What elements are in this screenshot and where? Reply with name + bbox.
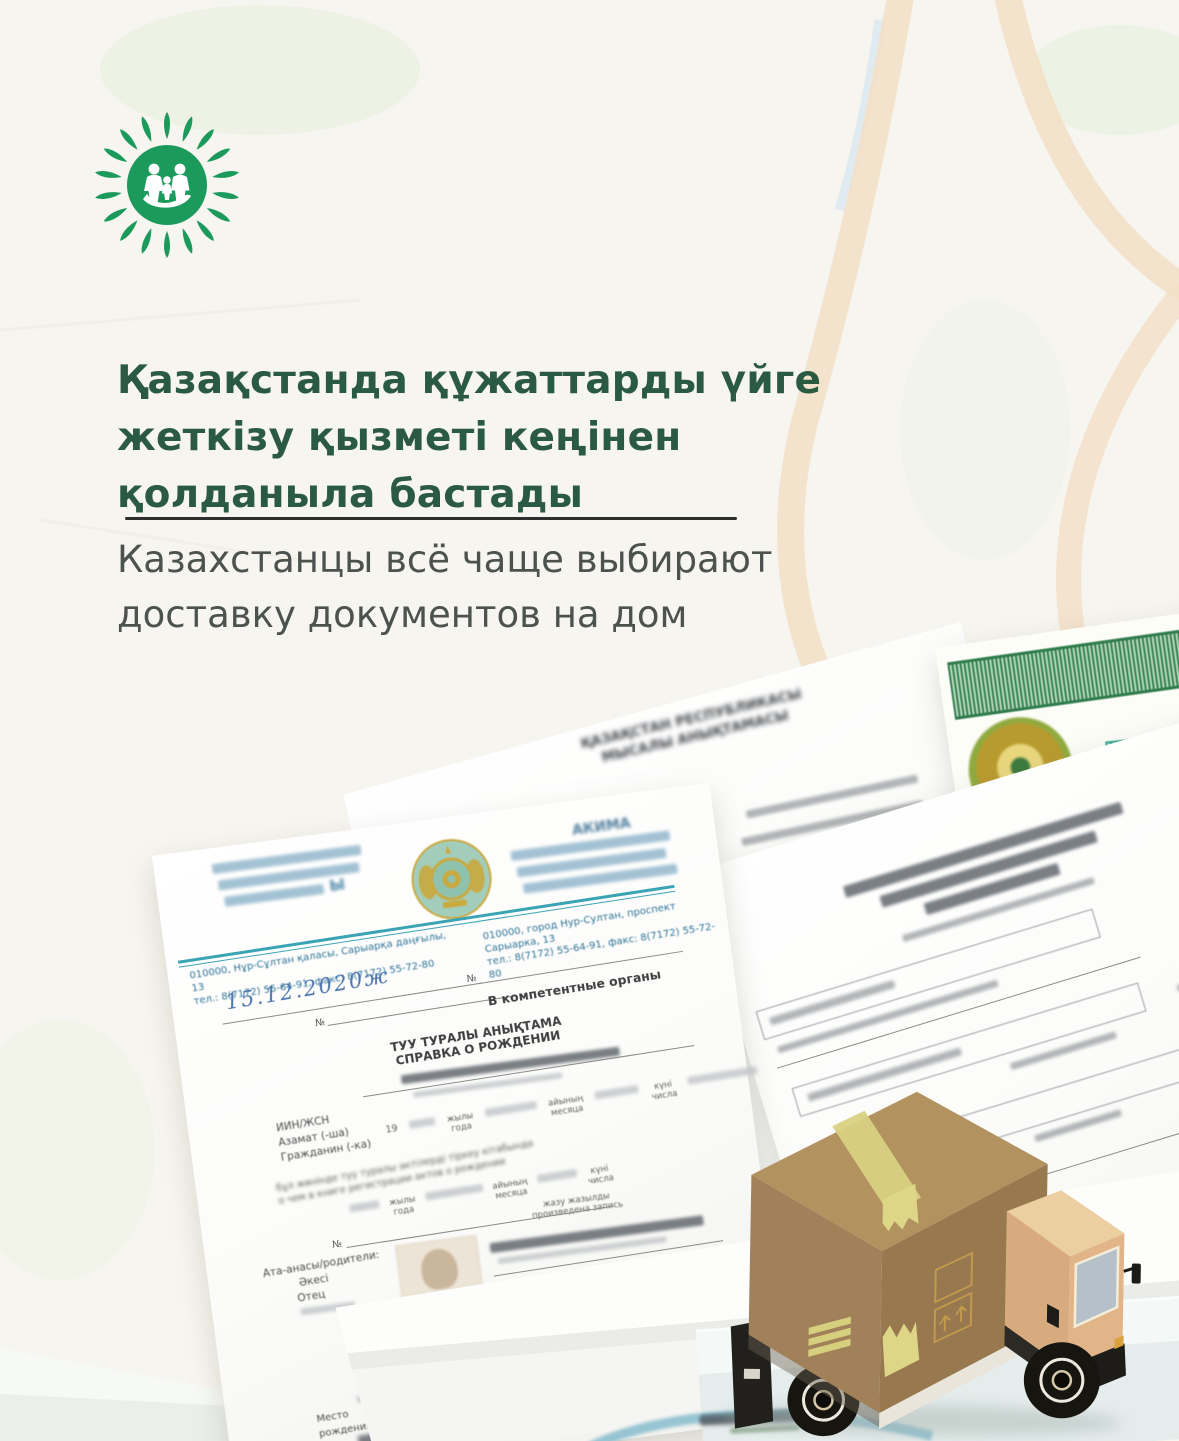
headline-line-2: жеткізу қызметі кеңінен bbox=[117, 409, 821, 466]
cardboard-box-icon bbox=[747, 1089, 1049, 1432]
delivery-truck-illustration bbox=[709, 1068, 1155, 1441]
headline-kk: Қазақстанда құжаттарды үйге жеткізу қызм… bbox=[117, 352, 821, 523]
subtitle-ru: Казахстанцы всё чаще выбирают доставку д… bbox=[117, 532, 772, 642]
parents-labels: Ата-анасы/родители: Әкесі Отец bbox=[262, 1248, 386, 1312]
headline-divider bbox=[125, 517, 737, 520]
headline-line-1: Қазақстанда құжаттарды үйге bbox=[117, 352, 821, 409]
headline-line-3: қолданыла бастады bbox=[117, 466, 821, 523]
number-sign: № bbox=[466, 973, 477, 985]
org-left-fragment: Ы bbox=[328, 875, 346, 895]
subtitle-line-2: доставку документов на дом bbox=[117, 587, 772, 642]
kazakhstan-emblem-icon bbox=[404, 832, 498, 926]
record-number-sign: № bbox=[332, 1239, 343, 1251]
subtitle-line-1: Казахстанцы всё чаще выбирают bbox=[117, 532, 772, 587]
mirror-icon bbox=[1132, 1263, 1141, 1283]
address-ru: 010000, город Нур-Султан, проспект Сарыа… bbox=[482, 894, 719, 982]
poster-canvas: Қазақстанда құжаттарды үйге жеткізу қызм… bbox=[0, 0, 1179, 1441]
iin-labels: ИИН/ЖСН Азамат (-ша) Гражданин (-ка) bbox=[275, 1107, 372, 1166]
government-for-citizens-logo bbox=[92, 110, 242, 260]
number-sign-2: № bbox=[315, 1017, 326, 1029]
